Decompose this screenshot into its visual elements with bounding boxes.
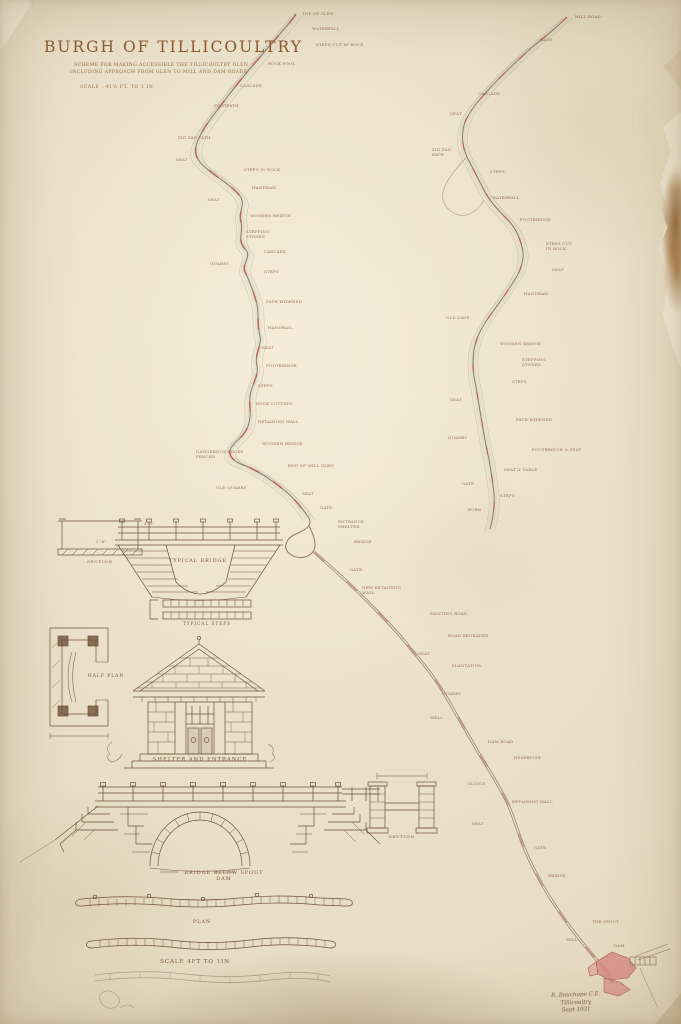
map-annotation: HANDRAIL	[252, 186, 277, 191]
map-annotation: QUARRY	[448, 436, 467, 441]
map-annotation: MILL	[566, 938, 578, 943]
label-section-detail: SECTION	[62, 559, 138, 564]
map-annotation: STEPPING STONES	[522, 358, 546, 368]
map-annotation: RETAINING WALL	[258, 420, 299, 425]
label-plan-scale: SCALE 4FT TO 1IN	[140, 959, 250, 966]
map-annotation: STEPS	[500, 494, 515, 499]
map-annotation: GATE	[350, 568, 362, 573]
map-annotation: EXISTING ROAD	[430, 612, 467, 617]
map-annotation: OLD QUARRY	[216, 486, 246, 491]
map-annotation: GATE	[320, 506, 332, 511]
page-title: BURGH OF TILLICOULTRY	[44, 38, 303, 56]
map-annotation: TOP OF GLEN	[302, 12, 334, 17]
map-annotation: SEAT	[302, 492, 314, 497]
label-pier-section: SECTION	[376, 834, 428, 839]
map-annotation: FOOTBRIDGE & SEAT	[532, 448, 581, 453]
map-annotation: CASCADE	[478, 92, 500, 97]
map-annotation: STEPS	[512, 380, 527, 385]
map-annotation: FOOTBRIDGE	[266, 364, 297, 369]
subtitle-line-1: SCHEME FOR MAKING ACCESSIBLE THE TILLICO…	[74, 63, 303, 68]
map-annotation: DAM	[614, 944, 625, 949]
map-annotation: 2'-6"	[96, 540, 106, 545]
map-annotation: ZIG ZAG PATH	[178, 136, 211, 141]
scale-note: SCALE : 41⅔ FT. TO 1 IN.	[80, 85, 303, 90]
map-annotation: HANDRAIL	[268, 326, 293, 331]
map-annotation: GATE	[534, 846, 546, 851]
subtitle-line-2: INCLUDING APPROACH FROM GLEN TO MILL AND…	[70, 70, 303, 75]
map-annotation: SEAT	[472, 822, 484, 827]
map-annotation: HILL ROAD	[575, 15, 601, 20]
map-annotation: SEAT & TABLE	[504, 468, 537, 473]
map-annotation: STEPPING STONES	[246, 230, 270, 240]
map-annotation: RETAINING WALL	[512, 800, 553, 805]
map-annotation: FOOTBRIDGE	[520, 218, 551, 223]
map-annotation: WELL	[430, 716, 443, 721]
map-annotation: WATERFALL	[492, 196, 520, 201]
map-annotation: STEPS	[490, 170, 505, 175]
map-annotation: SEAT	[176, 158, 188, 163]
map-annotation: STEPS IN ROCK	[244, 168, 280, 173]
map-annotation: ROAD REGRADED	[448, 634, 489, 639]
map-annotation: SEAT	[552, 268, 564, 273]
map-annotation: SEAT	[450, 112, 462, 117]
map-annotation: HANDRAIL	[524, 292, 549, 297]
map-annotation: THE SPOUT	[592, 920, 619, 925]
map-annotation: SEAT	[418, 652, 430, 657]
map-annotation: QUARRY	[442, 692, 461, 697]
map-annotation: STEPS CUT IN ROCK	[546, 242, 572, 252]
map-annotation: ZIG ZAG PATH	[432, 148, 451, 158]
map-annotation: RESERVOIR	[514, 756, 541, 761]
label-plan: PLAN	[178, 919, 226, 925]
map-annotation: PATH WIDENED	[516, 418, 552, 423]
map-annotation: DANGEROUS ROCKS FENCED	[196, 450, 243, 460]
signature-block: R. Bauchope C.E. Tillicoultry Sept 1931	[516, 990, 637, 1017]
map-annotation: SEAT	[208, 198, 220, 203]
map-annotation: SEAT	[262, 346, 274, 351]
map-annotation: STEPS	[258, 384, 273, 389]
map-annotation: PATH WIDENED	[266, 300, 302, 305]
map-annotation: BRIDGE	[354, 540, 372, 545]
drawing-sheet: TOP OF GLENWATERFALLSTEPS CUT IN ROCKROC…	[0, 0, 681, 1024]
map-annotation: BRIDGE	[548, 874, 566, 879]
map-annotation: QUARRY	[210, 262, 229, 267]
map-annotation: PLANTATION	[452, 664, 482, 669]
map-annotation: WOODEN BRIDGE	[262, 442, 303, 447]
label-shelter: SHELTER AND ENTRANCE	[144, 757, 256, 764]
map-annotation: ROCK CUTTING	[256, 402, 292, 407]
label-typical-bridge: TYPICAL BRIDGE	[158, 558, 238, 564]
label-bridge-below: BRIDGE BELOW SPOUT DAM	[160, 870, 288, 883]
map-annotation: BURN	[468, 508, 482, 513]
map-annotation: SEAT	[450, 398, 462, 403]
map-annotation: STEPS	[264, 270, 279, 275]
map-annotation: FOOTPATH	[214, 104, 239, 109]
map-annotation: WATERFALL	[312, 27, 340, 32]
map-annotation: END OF MILL GLEN	[288, 464, 334, 469]
map-annotation: 4'-0"	[144, 522, 154, 527]
map-annotation: CASCADE	[264, 250, 286, 255]
map-annotation: OLD LADE	[446, 316, 470, 321]
map-annotation: ENTRANCE SHELTER	[338, 520, 364, 530]
map-annotation: NEW RETAINING WALL	[362, 586, 401, 596]
map-annotation: GATE	[540, 38, 552, 43]
map-annotation: SLUICE	[468, 782, 485, 787]
label-half-plan: HALF PLAN	[84, 674, 128, 680]
title-block: BURGH OF TILLICOULTRY SCHEME FOR MAKING …	[44, 38, 303, 90]
label-typical-steps: TYPICAL STEPS	[168, 622, 246, 628]
map-linework	[0, 0, 681, 1024]
map-annotation: WOODEN BRIDGE	[250, 214, 291, 219]
map-annotation: DAM ROAD	[488, 740, 513, 745]
map-annotation: WOODEN BRIDGE	[500, 342, 541, 347]
map-annotation: STEPS CUT IN ROCK	[316, 43, 364, 48]
map-annotation: GATE	[462, 482, 474, 487]
